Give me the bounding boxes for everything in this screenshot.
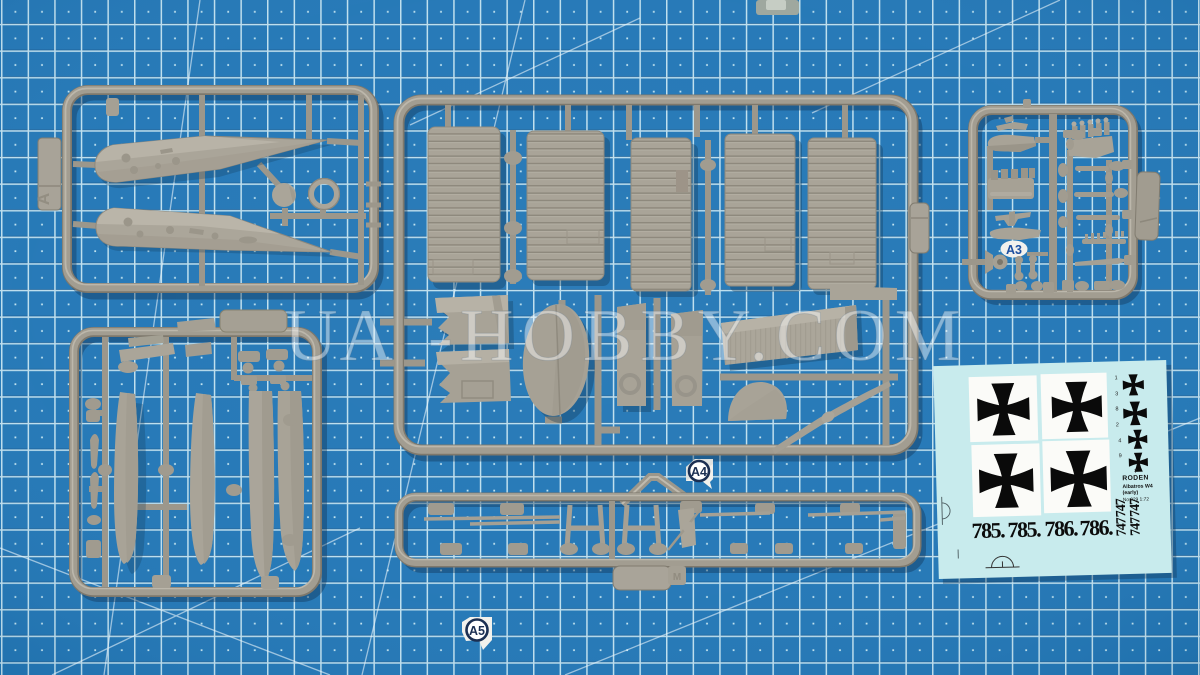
svg-text:785.: 785. bbox=[1007, 516, 1041, 542]
svg-text:3: 3 bbox=[1115, 391, 1118, 397]
svg-text:747: 747 bbox=[1128, 517, 1143, 536]
svg-text:9: 9 bbox=[1119, 453, 1122, 459]
svg-text:786.: 786. bbox=[1044, 515, 1078, 541]
svg-text:A5: A5 bbox=[469, 624, 485, 638]
svg-text:A4: A4 bbox=[691, 465, 707, 479]
svg-text:785.: 785. bbox=[971, 517, 1005, 543]
svg-text:8: 8 bbox=[1115, 406, 1118, 412]
svg-text:2: 2 bbox=[1116, 422, 1119, 428]
svg-text:(early): (early) bbox=[1123, 490, 1139, 496]
svg-text:RODEN: RODEN bbox=[1122, 474, 1149, 482]
svg-text:4: 4 bbox=[1118, 438, 1121, 444]
svg-text:1: 1 bbox=[1115, 375, 1118, 381]
svg-text:M: M bbox=[673, 572, 681, 583]
svg-text:747: 747 bbox=[1128, 498, 1143, 517]
svg-text:A: A bbox=[34, 193, 53, 205]
svg-text:-: - bbox=[428, 295, 453, 377]
svg-text:HOBBY.COM: HOBBY.COM bbox=[460, 295, 969, 377]
svg-text:UA: UA bbox=[284, 295, 395, 377]
svg-text:A3: A3 bbox=[1006, 243, 1022, 257]
svg-text:786.: 786. bbox=[1079, 514, 1113, 540]
